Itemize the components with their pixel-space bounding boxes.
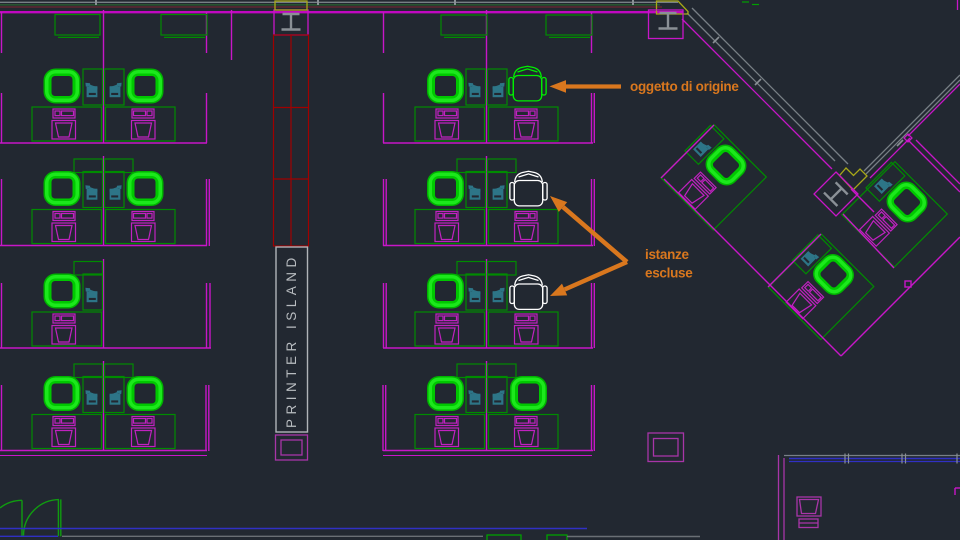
svg-text:escluse: escluse [645,266,693,281]
svg-text:PRINTER ISLAND: PRINTER ISLAND [284,253,299,428]
svg-text:istanze: istanze [645,247,689,262]
svg-text:oggetto di origine: oggetto di origine [630,79,739,94]
